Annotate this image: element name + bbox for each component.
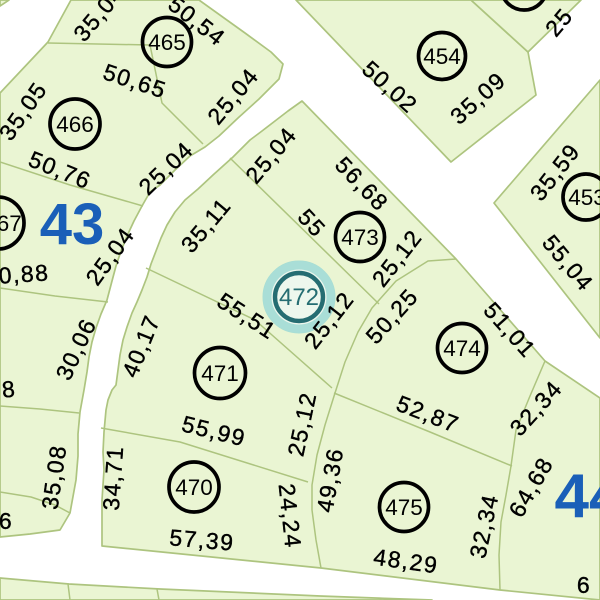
svg-text:474: 474 xyxy=(443,336,481,361)
svg-text:472: 472 xyxy=(279,284,319,311)
svg-text:466: 466 xyxy=(56,112,94,137)
svg-text:465: 465 xyxy=(148,30,186,55)
svg-text:6: 6 xyxy=(577,572,591,598)
svg-text:6: 6 xyxy=(0,508,13,534)
svg-text:44: 44 xyxy=(555,462,600,531)
svg-text:475: 475 xyxy=(385,495,423,520)
svg-text:467: 467 xyxy=(0,211,22,236)
svg-text:454: 454 xyxy=(423,44,461,69)
svg-text:453: 453 xyxy=(568,185,600,210)
svg-text:471: 471 xyxy=(201,361,239,386)
svg-text:43: 43 xyxy=(40,192,105,257)
svg-text:473: 473 xyxy=(341,225,379,250)
svg-text:34,71: 34,71 xyxy=(98,445,128,512)
svg-text:470: 470 xyxy=(175,475,213,500)
svg-text:8: 8 xyxy=(1,375,18,402)
svg-text:0,88: 0,88 xyxy=(0,259,50,288)
